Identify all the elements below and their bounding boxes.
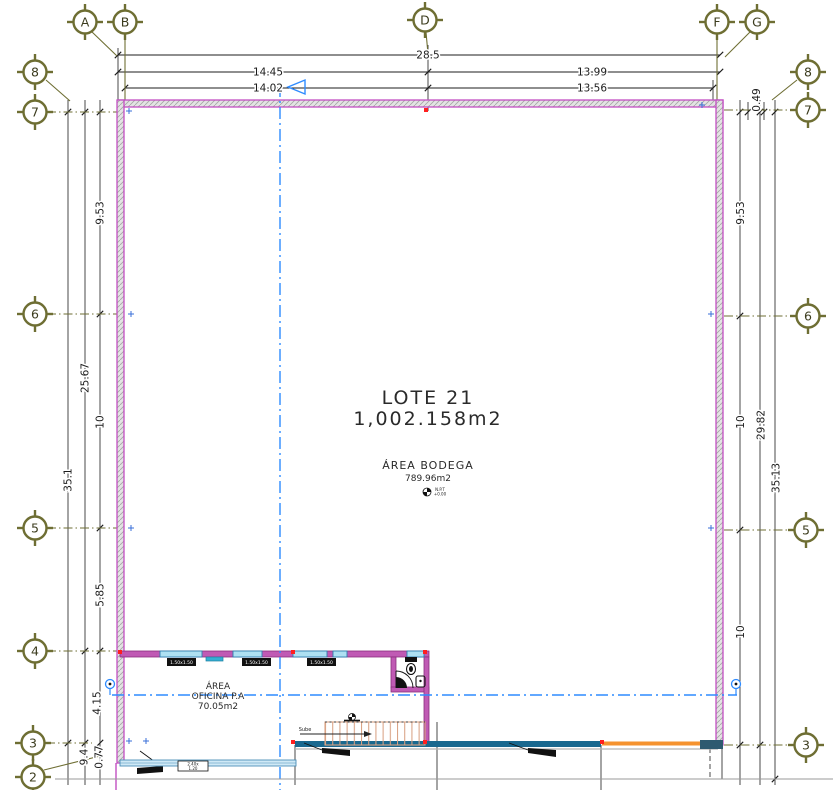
dim-right-total: 35.13 [771, 463, 783, 493]
axis-marker-icon [732, 680, 741, 696]
dim-left-office: 4.15 [92, 691, 104, 714]
dim-left-mid: 10 [95, 415, 107, 428]
oficina-line3: 70.05m2 [198, 702, 238, 712]
svg-text:8: 8 [31, 65, 39, 80]
dim-left-lower: 5.85 [95, 583, 107, 606]
floor-plan-canvas: 1.50x1.50 1.50x1.50 1.50x1.50 Sube [0, 0, 833, 790]
grid-bubble-r5: 5 [788, 512, 824, 548]
svg-text:3: 3 [802, 738, 810, 753]
dim-right-lower: 10 [735, 625, 747, 638]
grid-bubble-l7: 7 [17, 94, 53, 130]
grid-bubble-f: F [699, 4, 735, 40]
lote-area: 1,002.158m2 [353, 408, 502, 430]
grid-bubble-r6: 6 [790, 298, 826, 334]
svg-text:D: D [420, 13, 430, 28]
grid-bubble-a: A [67, 4, 103, 40]
bathroom [396, 657, 425, 688]
window-tag-label: 1.50x1.50 [245, 660, 268, 666]
axis-marker-icon [106, 680, 115, 696]
level-marker-icon: N.P.T +0.00 [423, 487, 447, 497]
grid-bubble-b: B [107, 4, 143, 40]
svg-text:F: F [713, 15, 720, 30]
dim-right-upper: 9.53 [735, 201, 747, 224]
dim-right-span: 29.82 [756, 410, 768, 440]
window-tag-label: 1.50x1.50 [310, 660, 333, 666]
oficina-line2: OFICINA P.A [192, 692, 245, 702]
svg-text:G: G [752, 15, 762, 30]
door-tag-line2: 1.20 [189, 766, 198, 771]
grid-bubble-r8: 8 [790, 54, 826, 90]
svg-text:B: B [121, 15, 130, 30]
svg-text:6: 6 [804, 309, 812, 324]
window-tag-label: 1.50x1.50 [170, 660, 193, 666]
dim-top-corner: 0.49 [751, 88, 763, 111]
window-tag: 1.50x1.50 [242, 658, 271, 666]
bodega-title: ÁREA BODEGA [382, 459, 474, 472]
centerlines [106, 80, 741, 790]
dim-top-left-outer: 14.45 [253, 67, 283, 79]
dim-top-right-outer: 13.99 [577, 67, 607, 79]
toilet-icon [405, 657, 417, 675]
grid-bubble-l2: 2 [15, 759, 51, 790]
dim-left-total: 35.1 [63, 468, 75, 491]
grid-bubble-r7: 7 [790, 92, 826, 128]
lote-title: LOTE 21 [382, 387, 475, 409]
dim-top-left-inner: 14.02 [253, 83, 283, 95]
svg-text:7: 7 [804, 103, 812, 118]
oficina-line1: ÁREA [206, 680, 231, 692]
bodega-area: 789.96m2 [405, 474, 451, 484]
stairs-label: Sube [299, 727, 312, 733]
window-tag: 1.50x1.50 [307, 658, 336, 666]
door-swing-icon [396, 671, 413, 688]
level-marker-icon [344, 714, 360, 721]
svg-text:8: 8 [804, 65, 812, 80]
door-tag: 2.40x 1.20 [178, 761, 208, 771]
dim-top-right-inner: 13.56 [577, 83, 607, 95]
svg-text:3: 3 [29, 736, 37, 751]
svg-text:2: 2 [29, 770, 37, 785]
dim-left-bottom-b: 0.77 [94, 745, 106, 768]
dim-left-upper: 9.53 [95, 201, 107, 224]
grid-bubble-l8: 8 [17, 54, 53, 90]
dim-left-span: 25.67 [80, 363, 92, 393]
grid-bubble-d: D [407, 2, 443, 38]
grid-bubble-r3: 3 [788, 727, 824, 763]
dim-right-mid: 10 [735, 415, 747, 428]
grid-bubble-l5: 5 [17, 510, 53, 546]
svg-text:7: 7 [31, 105, 39, 120]
level-text: +0.00 [434, 492, 447, 497]
window-tag: 1.50x1.50 [167, 658, 196, 666]
svg-text:A: A [81, 15, 90, 30]
section-arrow-icon [288, 80, 305, 94]
svg-text:5: 5 [802, 523, 810, 538]
grid-bubble-l3: 3 [15, 725, 51, 761]
dim-left-bottom-a: 9.4 [79, 748, 91, 765]
svg-text:5: 5 [31, 521, 39, 536]
grid-bubble-g: G [739, 4, 775, 40]
dim-top-total: 28.5 [416, 50, 439, 62]
annotations: LOTE 21 1,002.158m2 ÁREA BODEGA 789.96m2… [192, 387, 503, 721]
grid-bubble-l4: 4 [17, 633, 53, 669]
svg-text:4: 4 [31, 644, 39, 659]
grid-bubble-l6: 6 [17, 296, 53, 332]
svg-text:6: 6 [31, 307, 39, 322]
